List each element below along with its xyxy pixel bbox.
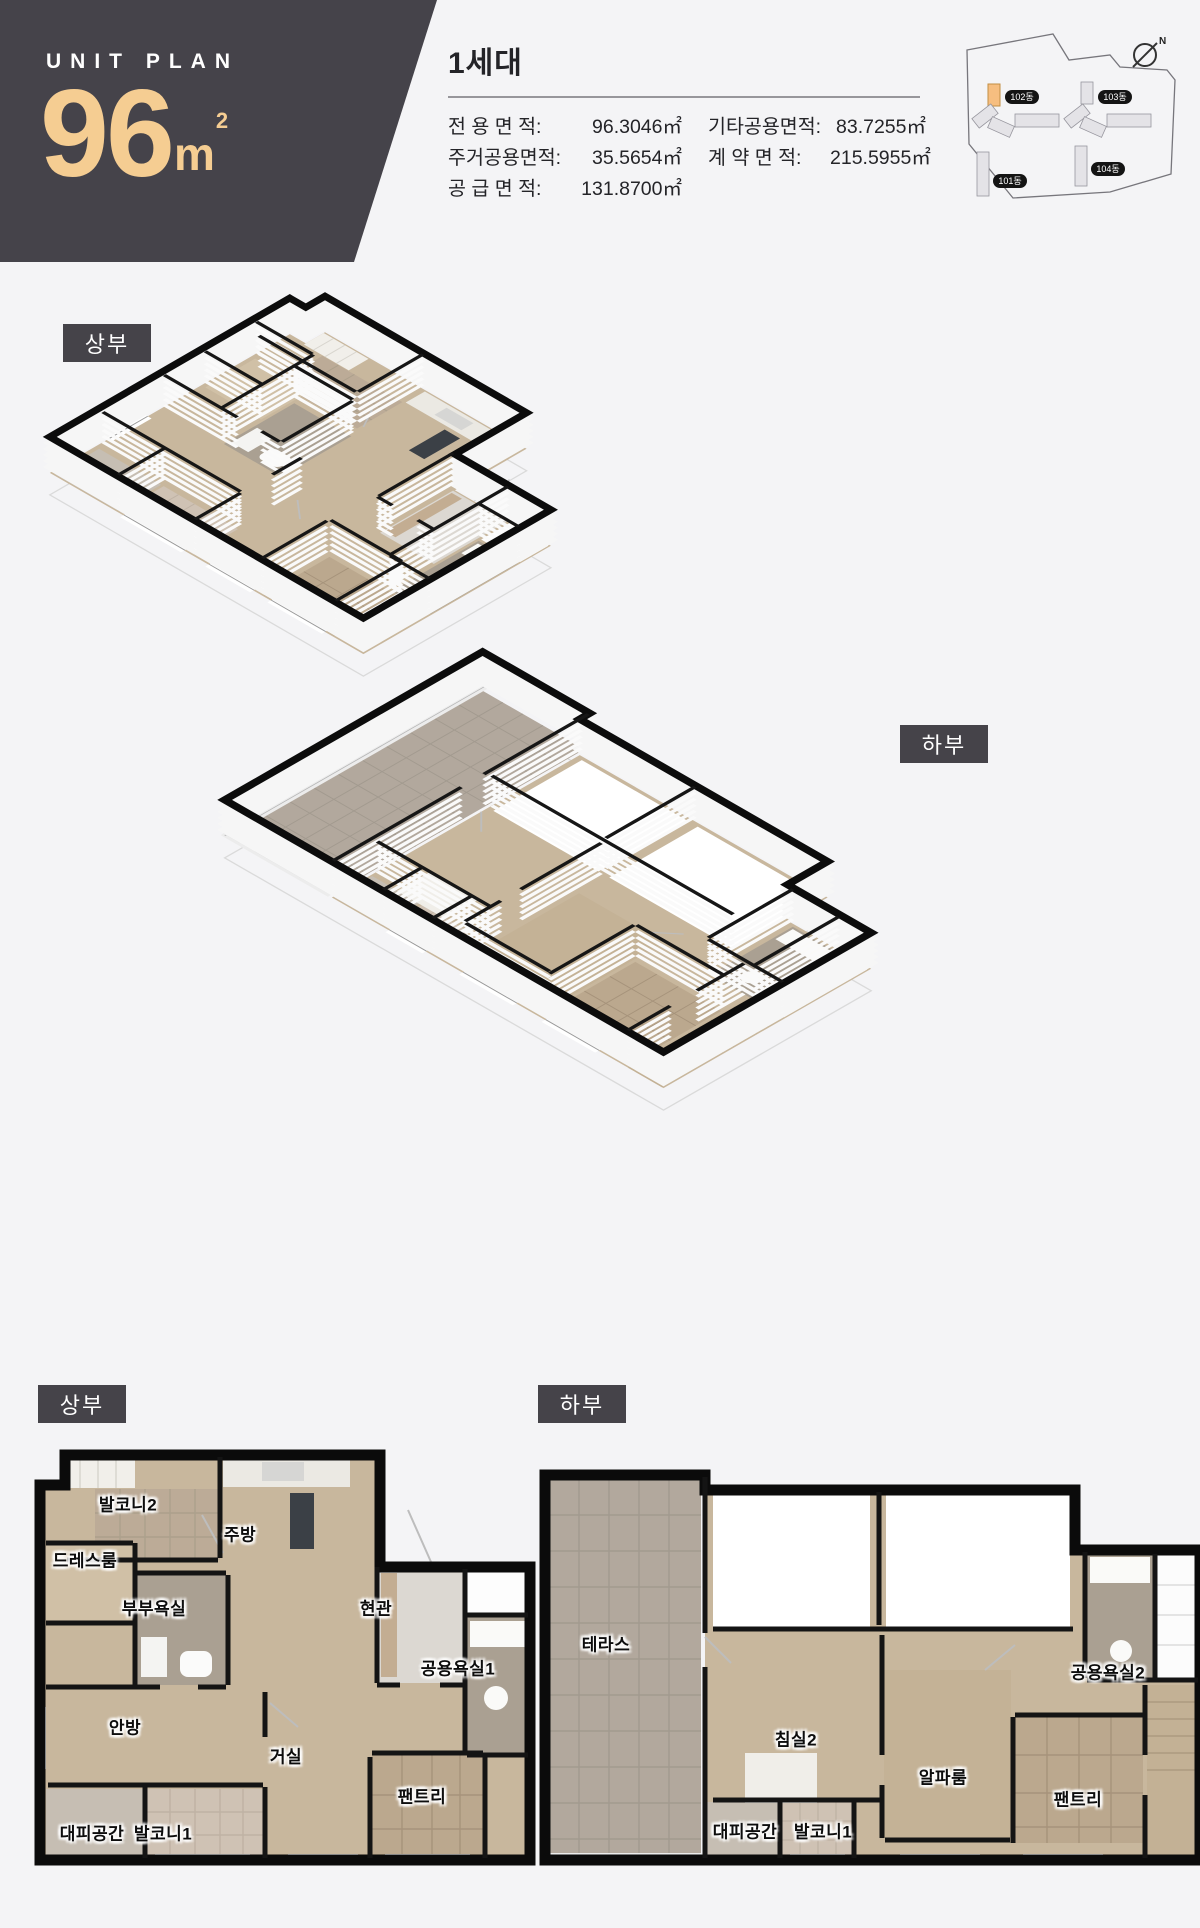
room-label-kitchen: 주방 xyxy=(224,1521,256,1546)
room-label-entrance: 현관 xyxy=(360,1595,392,1620)
room-label-balcony1-lower: 발코니1 xyxy=(794,1818,852,1843)
building-cluster-104: 104동 xyxy=(1075,146,1125,186)
building-cluster-102: 102동 xyxy=(972,84,1059,137)
area-row: 주거공용면적35.5654㎡ 계 약 면 적215.5955㎡ xyxy=(448,143,923,174)
building-cluster-103: 103동 xyxy=(1064,82,1151,137)
iso-view-lower xyxy=(215,635,975,1115)
plan-lower-label: 하부 xyxy=(538,1385,626,1423)
site-map: N 102동 103동 101동 1 xyxy=(955,22,1200,212)
unit-size: 96m2 xyxy=(40,66,225,202)
room-label-pantry-lower: 팬트리 xyxy=(1054,1786,1102,1811)
room-label-dressroom: 드레스룸 xyxy=(53,1547,118,1572)
room-label-alpha-room: 알파룸 xyxy=(919,1764,967,1789)
area-value: 83.7255㎡ xyxy=(830,112,926,143)
header-banner: UNIT PLAN 96m2 xyxy=(0,0,440,262)
room-label-bedroom2: 침실2 xyxy=(775,1726,817,1751)
room-label-common-bath1: 공용욕실1 xyxy=(421,1655,496,1680)
area-label: 기타공용면적 xyxy=(708,112,830,143)
unit-info-title: 1세대 xyxy=(448,38,923,82)
area-value: 215.5955㎡ xyxy=(830,143,926,174)
room-label-refuge-lower: 대피공간 xyxy=(713,1818,778,1843)
area-row: 전 용 면 적96.3046㎡ 기타공용면적83.7255㎡ xyxy=(448,112,923,143)
iso-view-upper xyxy=(35,268,685,698)
room-label-master-bath: 부부욕실 xyxy=(122,1595,187,1620)
area-value: 35.5654㎡ xyxy=(576,143,682,174)
area-value: 96.3046㎡ xyxy=(576,112,682,143)
svg-text:103동: 103동 xyxy=(1103,92,1126,102)
plan-upper-label: 상부 xyxy=(38,1385,126,1423)
svg-text:104동: 104동 xyxy=(1096,164,1119,174)
area-label: 전 용 면 적 xyxy=(448,112,576,143)
divider xyxy=(448,96,920,98)
room-label-balcony2: 발코니2 xyxy=(99,1491,157,1516)
area-label: 주거공용면적 xyxy=(448,143,576,174)
area-value: 131.8700㎡ xyxy=(576,174,682,205)
room-label-pantry-upper: 팬트리 xyxy=(398,1783,446,1808)
room-label-balcony1-upper: 발코니1 xyxy=(134,1820,192,1845)
svg-text:N: N xyxy=(1159,36,1166,47)
room-label-master-bedroom: 안방 xyxy=(109,1714,141,1739)
area-label: 계 약 면 적 xyxy=(708,143,830,174)
room-label-refuge-upper: 대피공간 xyxy=(60,1820,125,1845)
highlighted-building xyxy=(988,84,1000,106)
svg-text:102동: 102동 xyxy=(1010,92,1033,102)
area-row: 공 급 면 적131.8700㎡ xyxy=(448,174,923,205)
area-label: 공 급 면 적 xyxy=(448,174,576,205)
room-label-common-bath2: 공용욕실2 xyxy=(1071,1659,1146,1684)
north-compass-icon: N xyxy=(1133,36,1166,67)
unit-size-unit: m2 xyxy=(174,128,227,180)
unit-size-number: 96 xyxy=(40,65,172,203)
room-label-terrace: 테라스 xyxy=(582,1631,630,1656)
building-cluster-101: 101동 xyxy=(977,152,1027,196)
unit-plan-page: UNIT PLAN 96m2 1세대 전 용 면 적96.3046㎡ 기타공용면… xyxy=(0,0,1200,1928)
svg-text:101동: 101동 xyxy=(998,176,1021,186)
room-label-living-room: 거실 xyxy=(270,1743,302,1768)
unit-info: 1세대 전 용 면 적96.3046㎡ 기타공용면적83.7255㎡ 주거공용면… xyxy=(448,38,923,205)
